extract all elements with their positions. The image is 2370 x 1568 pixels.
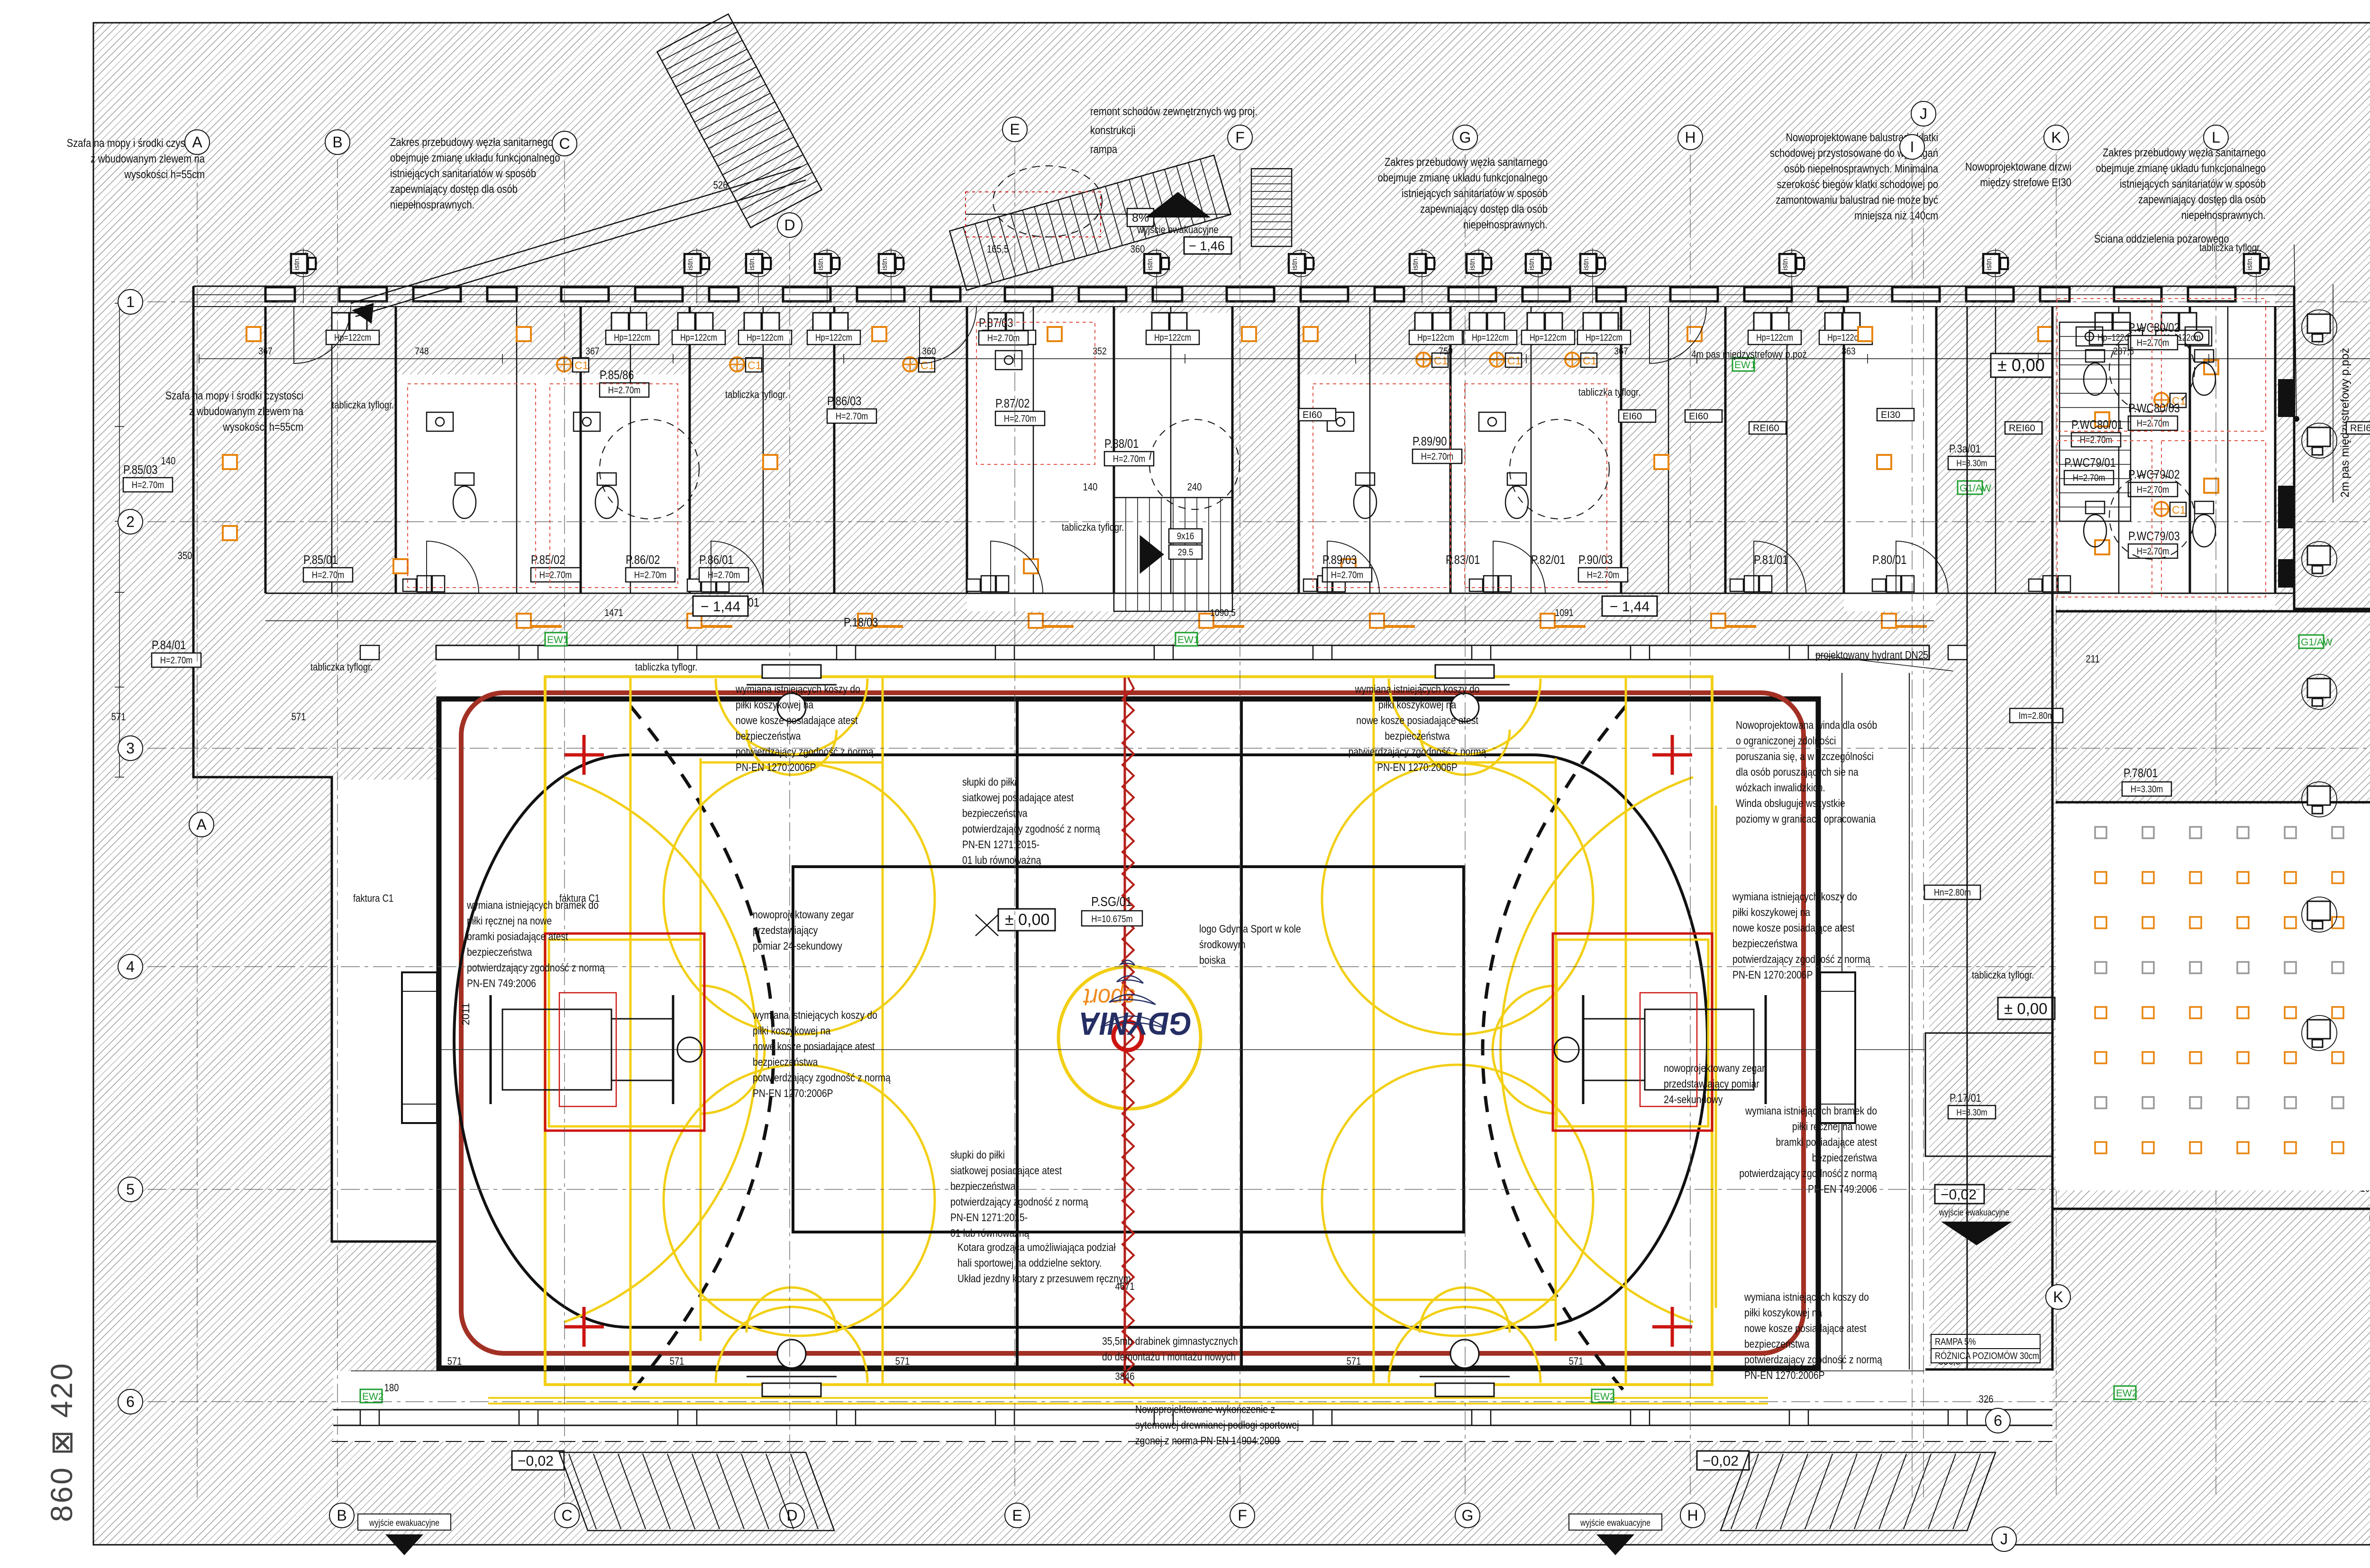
svg-text:H=2.70m: H=2.70m xyxy=(836,411,868,422)
svg-text:zgonej z norma PN-EN 14904:200: zgonej z norma PN-EN 14904:2009 xyxy=(1135,1435,1280,1447)
svg-text:367: 367 xyxy=(585,346,599,357)
svg-text:± 0,00: ± 0,00 xyxy=(1005,911,1049,929)
svg-text:szerokość biegów klatki schodo: szerokość biegów klatki schodowej po xyxy=(1777,178,1938,190)
svg-text:P.89/90: P.89/90 xyxy=(1413,435,1447,448)
svg-text:2011: 2011 xyxy=(460,1003,472,1025)
svg-text:−0,02: −0,02 xyxy=(518,1453,554,1469)
svg-text:rampa: rampa xyxy=(1090,143,1118,155)
svg-text:1091: 1091 xyxy=(1555,607,1573,619)
svg-text:P.90/03: P.90/03 xyxy=(1578,553,1613,567)
svg-text:571: 571 xyxy=(1347,1356,1361,1368)
svg-text:571: 571 xyxy=(1569,1356,1584,1368)
svg-text:H=3.30m: H=3.30m xyxy=(2131,784,2163,795)
svg-text:6: 6 xyxy=(126,1393,135,1410)
svg-text:29.5: 29.5 xyxy=(1178,547,1194,558)
svg-text:projektowany hydrant DN25: projektowany hydrant DN25 xyxy=(1815,650,1928,662)
svg-text:poziomy w granicach opracowani: poziomy w granicach opracowania xyxy=(1736,814,1876,825)
svg-text:H=2.70m: H=2.70m xyxy=(160,655,193,666)
svg-text:niepełnosprawnych.: niepełnosprawnych. xyxy=(390,198,474,211)
svg-text:potwierdzający zgodność z norm: potwierdzający zgodność z normą xyxy=(962,824,1100,835)
svg-text:571: 571 xyxy=(292,712,306,723)
svg-text:Nowoprojektowana winda dla osó: Nowoprojektowana winda dla osób xyxy=(1736,720,1877,732)
svg-text:siatkowej posiadające atest: siatkowej posiadające atest xyxy=(950,1165,1062,1177)
svg-text:patwierdzający zgodność z norm: patwierdzający zgodność z normą xyxy=(1349,746,1486,758)
svg-text:istn.: istn. xyxy=(1985,256,1993,270)
svg-text:P.3a/01: P.3a/01 xyxy=(1949,442,1981,455)
svg-text:H=2.70m: H=2.70m xyxy=(1587,570,1620,580)
svg-text:Hp=122cm: Hp=122cm xyxy=(680,332,717,343)
svg-text:2: 2 xyxy=(126,513,135,530)
svg-text:PN-EN 1270:2006P: PN-EN 1270:2006P xyxy=(1377,762,1458,774)
svg-text:8%: 8% xyxy=(1132,211,1149,225)
svg-text:obejmuje zmianę układu funkcjo: obejmuje zmianę układu funkcjonalnego xyxy=(1377,171,1548,184)
svg-text:360: 360 xyxy=(922,346,936,357)
svg-text:−0,02: −0,02 xyxy=(1703,1453,1739,1469)
svg-text:360: 360 xyxy=(1130,244,1145,255)
svg-text:środkowym: środkowym xyxy=(1199,939,1246,951)
svg-text:konstrukcji: konstrukcji xyxy=(1090,124,1135,136)
svg-text:piłki koszykowej na: piłki koszykowej na xyxy=(753,1025,830,1037)
svg-text:o ograniczonej zdolności: o ograniczonej zdolności xyxy=(1736,735,1836,747)
svg-text:180: 180 xyxy=(384,1383,399,1394)
svg-text:J: J xyxy=(2000,1531,2008,1548)
svg-text:bezpieczeństwa: bezpieczeństwa xyxy=(962,808,1028,820)
svg-text:H=2.70m: H=2.70m xyxy=(539,570,572,580)
svg-text:24-sekundowy: 24-sekundowy xyxy=(1664,1094,1723,1106)
svg-text:3846: 3846 xyxy=(1115,1371,1134,1383)
svg-text:C1: C1 xyxy=(574,359,588,372)
svg-text:EW2: EW2 xyxy=(362,1391,384,1402)
svg-text:wysokości h=55cm: wysokości h=55cm xyxy=(124,168,205,181)
svg-text:EW1: EW1 xyxy=(1734,360,1756,371)
svg-text:C: C xyxy=(561,1507,572,1524)
svg-text:bezpieczeństwa: bezpieczeństwa xyxy=(1812,1152,1878,1164)
svg-text:EW1: EW1 xyxy=(1177,634,1199,645)
svg-text:z wbudowanym zlewem na: z wbudowanym zlewem na xyxy=(189,405,303,417)
svg-text:Zakres przebudowy węzła sanita: Zakres przebudowy węzła sanitarnego xyxy=(1385,155,1548,168)
svg-text:tabliczka tyflogr.: tabliczka tyflogr. xyxy=(310,662,373,673)
svg-text:tabliczka tyflogr.: tabliczka tyflogr. xyxy=(1062,522,1124,534)
svg-text:potwierdzający zgodność z norm: potwierdzający zgodność z normą xyxy=(1732,954,1870,966)
svg-text:piłki ręcznej na nowe: piłki ręcznej na nowe xyxy=(467,915,552,927)
svg-text:1090,5: 1090,5 xyxy=(1210,607,1236,619)
svg-text:niepełnosprawnych.: niepełnosprawnych. xyxy=(2181,208,2266,221)
svg-text:istniejących sanitariatów w sp: istniejących sanitariatów w sposób xyxy=(1402,187,1548,199)
svg-text:piłki koszykowej na: piłki koszykowej na xyxy=(736,699,813,711)
svg-text:P.WC80/03: P.WC80/03 xyxy=(2128,401,2180,415)
svg-text:H=2.70m: H=2.70m xyxy=(2073,472,2106,483)
svg-text:H=2.70m: H=2.70m xyxy=(1004,413,1037,424)
svg-text:Hp=122cm: Hp=122cm xyxy=(1530,332,1567,343)
svg-text:4: 4 xyxy=(126,958,135,975)
svg-text:P.18/03: P.18/03 xyxy=(844,616,878,629)
svg-text:C1: C1 xyxy=(2172,504,2186,516)
svg-text:Zakres przebudowy węzła sanita: Zakres przebudowy węzła sanitarnego xyxy=(2103,146,2266,159)
svg-text:9x16: 9x16 xyxy=(1177,531,1194,542)
svg-text:Kotara grodząca umożliwiająca: Kotara grodząca umożliwiająca podział xyxy=(957,1242,1116,1254)
svg-text:P.88/01: P.88/01 xyxy=(1104,437,1139,451)
svg-text:faktura C1: faktura C1 xyxy=(559,893,600,905)
svg-text:wózkach inwalidzkich.: wózkach inwalidzkich. xyxy=(1735,782,1825,794)
svg-text:istn.: istn. xyxy=(686,256,694,270)
svg-text:Układ jezdny kotary z przesuwe: Układ jezdny kotary z przesuwem ręcznym xyxy=(957,1273,1131,1285)
svg-text:Hp=122cm: Hp=122cm xyxy=(815,332,852,343)
svg-text:H=2.70m: H=2.70m xyxy=(2137,418,2169,429)
svg-text:860 ⊠ 420: 860 ⊠ 420 xyxy=(45,1361,79,1522)
svg-text:nowe kosze posiadające atest: nowe kosze posiadające atest xyxy=(1744,1323,1867,1335)
svg-text:potwierdzający zgodność z norm: potwierdzający zgodność z normą xyxy=(753,1072,891,1084)
svg-text:326: 326 xyxy=(1979,1394,1994,1405)
svg-text:faktura C1: faktura C1 xyxy=(353,893,393,905)
svg-text:571: 571 xyxy=(447,1356,462,1368)
svg-text:K: K xyxy=(2051,129,2061,146)
svg-text:P.WC80/01: P.WC80/01 xyxy=(2071,418,2123,432)
svg-text:istn.: istn. xyxy=(817,256,825,270)
svg-text:RÓŻNICA POZIOMÓW 30cm: RÓŻNICA POZIOMÓW 30cm xyxy=(1935,1350,2039,1361)
svg-text:sytemowej drewnianej podłogi s: sytemowej drewnianej podłogi sportowej xyxy=(1135,1420,1299,1432)
svg-text:P.WC80/02: P.WC80/02 xyxy=(2128,321,2180,335)
svg-text:367: 367 xyxy=(258,346,272,357)
svg-text:P.86/02: P.86/02 xyxy=(626,553,660,567)
svg-text:bezpieczeństwa: bezpieczeństwa xyxy=(467,947,532,959)
svg-text:Nowoprojektowane drzwi: Nowoprojektowane drzwi xyxy=(1965,160,2071,173)
svg-text:211: 211 xyxy=(2086,654,2099,665)
svg-text:nowoprojektowany zegar: nowoprojektowany zegar xyxy=(1664,1063,1765,1075)
svg-text:Hn=2.80m: Hn=2.80m xyxy=(1934,887,1971,898)
svg-text:571: 571 xyxy=(670,1356,684,1368)
svg-text:H=3.30m: H=3.30m xyxy=(1956,1107,1987,1118)
svg-text:PN-EN 1271:2015-: PN-EN 1271:2015- xyxy=(962,839,1039,851)
svg-text:C: C xyxy=(559,135,570,152)
svg-text:750: 750 xyxy=(1439,346,1453,357)
svg-text:REI60: REI60 xyxy=(2009,423,2035,434)
svg-text:Im=2.80m: Im=2.80m xyxy=(2018,710,2054,721)
svg-text:EW2: EW2 xyxy=(2116,1388,2138,1399)
svg-text:istn.: istn. xyxy=(1412,256,1420,270)
svg-text:E: E xyxy=(1012,1507,1022,1524)
svg-text:dla osób poruszających sie na: dla osób poruszających sie na xyxy=(1736,767,1859,779)
svg-text:hali sportowej na oddzielne se: hali sportowej na oddzielne sektory. xyxy=(957,1258,1102,1269)
svg-text:H=2.70m: H=2.70m xyxy=(2137,484,2169,495)
svg-text:D: D xyxy=(784,217,795,234)
svg-text:remont schodów zewnętrznych wg: remont schodów zewnętrznych wg proj. xyxy=(1090,105,1258,118)
svg-text:zapewniający dostęp dla osób: zapewniający dostęp dla osób xyxy=(1420,202,1548,215)
svg-text:H=2.70m: H=2.70m xyxy=(1421,451,1454,462)
svg-text:P.84/01: P.84/01 xyxy=(152,638,186,652)
svg-text:bezpieczeństwa: bezpieczeństwa xyxy=(1744,1339,1810,1350)
svg-text:słupki do piłki: słupki do piłki xyxy=(950,1150,1005,1161)
svg-text:piłki koszykowej na: piłki koszykowej na xyxy=(1744,1307,1822,1319)
svg-text:wymiana istniejących koszy do: wymiana istniejących koszy do xyxy=(1355,684,1480,696)
svg-text:748: 748 xyxy=(415,346,428,357)
svg-text:obejmuje zmianę układu funkcjo: obejmuje zmianę układu funkcjonalnego xyxy=(390,151,560,164)
svg-text:siatkowej posiadające atest: siatkowej posiadające atest xyxy=(962,792,1074,804)
svg-text:przedstawiający pomiar: przedstawiający pomiar xyxy=(1664,1079,1759,1090)
svg-text:P.SG/01: P.SG/01 xyxy=(1091,895,1132,909)
svg-text:wymiana istniejących koszy do: wymiana istniejących koszy do xyxy=(1744,1292,1869,1304)
svg-text:H=2.70m: H=2.70m xyxy=(1331,570,1364,580)
svg-text:bramki posiadające atest: bramki posiadające atest xyxy=(1776,1137,1877,1149)
svg-text:EW1: EW1 xyxy=(547,634,569,645)
svg-text:EI60: EI60 xyxy=(1303,410,1322,420)
svg-text:A: A xyxy=(196,816,207,833)
svg-text:EI60: EI60 xyxy=(1623,411,1642,422)
svg-text:P.17/01: P.17/01 xyxy=(1950,1091,1981,1104)
svg-text:± 0,00: ± 0,00 xyxy=(1997,355,2045,375)
svg-text:EI60: EI60 xyxy=(1689,411,1708,422)
svg-text:potwierdzający zgodność z norm: potwierdzający zgodność z normą xyxy=(467,962,605,974)
svg-text:J: J xyxy=(1920,105,1927,122)
svg-text:istn.: istn. xyxy=(1781,256,1789,270)
svg-text:G1/AW: G1/AW xyxy=(1960,483,1991,494)
svg-text:bezpieczeństwa: bezpieczeństwa xyxy=(736,731,801,743)
svg-text:wyjście ewakuacyjne: wyjście ewakuacyjne xyxy=(1580,1518,1650,1528)
svg-text:osób niepełnosprawnych. Minima: osób niepełnosprawnych. Minimalna xyxy=(1784,162,1938,175)
svg-text:istn.: istn. xyxy=(1528,256,1536,270)
svg-text:EI30: EI30 xyxy=(1881,410,1900,420)
svg-text:01 lub równoważną: 01 lub równoważną xyxy=(962,855,1041,867)
svg-text:P.85/03: P.85/03 xyxy=(123,463,157,477)
svg-text:35,5mb drabinek gimnastycznych: 35,5mb drabinek gimnastycznych xyxy=(1102,1336,1238,1348)
svg-text:P.81/01: P.81/01 xyxy=(1754,553,1788,567)
svg-text:571: 571 xyxy=(895,1356,910,1368)
svg-text:logo Gdynia Sport w kole: logo Gdynia Sport w kole xyxy=(1199,924,1301,935)
svg-text:piłki koszykowej na: piłki koszykowej na xyxy=(1732,907,1810,919)
svg-text:1: 1 xyxy=(126,293,135,310)
svg-text:Hp=122cm: Hp=122cm xyxy=(1472,332,1509,343)
svg-text:K: K xyxy=(2053,1288,2063,1305)
svg-text:H=2.70m: H=2.70m xyxy=(2137,546,2169,557)
svg-text:wysokości h=55cm: wysokości h=55cm xyxy=(222,420,303,433)
svg-text:140: 140 xyxy=(1083,482,1098,493)
svg-text:526: 526 xyxy=(713,180,728,191)
svg-text:tabliczka tyflogr.: tabliczka tyflogr. xyxy=(1578,387,1641,399)
svg-text:słupki do piłki: słupki do piłki xyxy=(962,777,1017,789)
svg-text:nowoprojektowany zegar: nowoprojektowany zegar xyxy=(753,909,854,921)
svg-text:Hp=122cm: Hp=122cm xyxy=(747,332,784,343)
svg-text:REI60: REI60 xyxy=(1753,423,1779,434)
svg-text:mniejsza niż 140cm: mniejsza niż 140cm xyxy=(1854,209,1938,222)
svg-text:H=3.30m: H=3.30m xyxy=(1956,458,1987,469)
svg-text:A: A xyxy=(192,134,202,151)
svg-text:wyjście ewakuacyjne: wyjście ewakuacyjne xyxy=(1939,1207,2009,1218)
svg-text:P.82/01: P.82/01 xyxy=(1531,553,1565,567)
svg-text:nowe kosze posiadające atest: nowe kosze posiadające atest xyxy=(753,1041,875,1053)
svg-text:pomiar 24-sekundowy: pomiar 24-sekundowy xyxy=(753,941,842,952)
svg-text:P.WC79/01: P.WC79/01 xyxy=(2064,456,2116,470)
svg-text:H=2.70m: H=2.70m xyxy=(132,480,164,490)
svg-text:H: H xyxy=(1685,129,1695,146)
svg-text:istn.: istn. xyxy=(1146,256,1154,270)
svg-text:I: I xyxy=(1910,138,1914,155)
svg-text:H: H xyxy=(1687,1507,1698,1524)
svg-text:piłki koszykowej na: piłki koszykowej na xyxy=(1378,699,1456,711)
svg-text:tabliczka tyflogr.: tabliczka tyflogr. xyxy=(2199,243,2261,254)
svg-text:E: E xyxy=(1010,121,1020,138)
svg-text:zamontowaniu balustrad nie moż: zamontowaniu balustrad nie może być xyxy=(1776,193,1938,206)
svg-text:wyjście ewakuacyjne: wyjście ewakuacyjne xyxy=(369,1518,439,1528)
svg-text:F: F xyxy=(1238,1507,1247,1524)
svg-text:tabliczka tyflogr.: tabliczka tyflogr. xyxy=(725,390,787,401)
svg-text:Hp=122cm: Hp=122cm xyxy=(1417,332,1454,343)
svg-text:Hp=122cm: Hp=122cm xyxy=(1154,332,1191,343)
svg-text:P.86/03: P.86/03 xyxy=(827,394,861,408)
svg-text:istn.: istn. xyxy=(1291,256,1299,270)
svg-text:367: 367 xyxy=(1614,346,1628,357)
svg-text:wyjście ewakuacyjne: wyjście ewakuacyjne xyxy=(1137,225,1218,236)
svg-text:EW2: EW2 xyxy=(1594,1391,1615,1402)
svg-text:P.86/01: P.86/01 xyxy=(699,553,733,567)
svg-text:1471: 1471 xyxy=(604,607,623,619)
svg-text:tabliczka tyflogr.: tabliczka tyflogr. xyxy=(1972,970,2034,981)
svg-text:zapewniający dostęp dla osób: zapewniający dostęp dla osób xyxy=(2138,193,2266,206)
svg-text:3: 3 xyxy=(126,740,135,757)
svg-text:− 1,44: − 1,44 xyxy=(701,599,740,615)
svg-text:F: F xyxy=(1235,129,1245,146)
svg-text:H=2.70m: H=2.70m xyxy=(708,570,740,580)
svg-text:Hp=122cm: Hp=122cm xyxy=(614,332,651,343)
svg-text:tabliczka tyflogr.: tabliczka tyflogr. xyxy=(635,662,697,673)
svg-text:istn.: istn. xyxy=(1468,256,1477,270)
svg-text:H=2.70m: H=2.70m xyxy=(2137,337,2169,348)
svg-text:PN-EN 1270:2006P: PN-EN 1270:2006P xyxy=(1732,970,1813,981)
svg-text:P.87/02: P.87/02 xyxy=(995,397,1030,410)
svg-text:potwierdzający zgodność z norm: potwierdzający zgodność z normą xyxy=(1739,1168,1877,1180)
svg-text:boiska: boiska xyxy=(1199,955,1226,967)
svg-text:Winda obsługuje wszystkie: Winda obsługuje wszystkie xyxy=(1736,798,1845,810)
svg-text:istn.: istn. xyxy=(881,256,889,270)
svg-text:H=10.675m: H=10.675m xyxy=(1091,914,1132,924)
svg-text:PN-EN 1270:2006P: PN-EN 1270:2006P xyxy=(753,1088,833,1100)
svg-text:między strefowe EI30: między strefowe EI30 xyxy=(1980,176,2071,189)
svg-text:istn.: istn. xyxy=(1582,256,1590,270)
svg-text:G: G xyxy=(1462,1507,1474,1524)
svg-text:Hp=122cm: Hp=122cm xyxy=(1586,332,1623,343)
svg-text:± 0,00: ± 0,00 xyxy=(2004,1000,2048,1017)
svg-text:piłki ręcznej na nowe: piłki ręcznej na nowe xyxy=(1792,1121,1877,1133)
svg-text:bramki posiadające atest: bramki posiadające atest xyxy=(467,931,568,943)
svg-text:bezpieczeństwa: bezpieczeństwa xyxy=(950,1181,1016,1193)
svg-text:363: 363 xyxy=(1841,346,1855,357)
svg-text:PN-EN 1270:2006P: PN-EN 1270:2006P xyxy=(736,762,816,774)
svg-text:przedstawiający: przedstawiający xyxy=(753,925,818,937)
svg-text:240: 240 xyxy=(1187,482,1202,493)
svg-text:nowe kosze posiadające atest: nowe kosze posiadające atest xyxy=(736,715,858,727)
svg-text:B: B xyxy=(337,1507,346,1524)
svg-text:5: 5 xyxy=(126,1181,135,1198)
svg-text:C1: C1 xyxy=(1583,354,1596,367)
svg-text:G1/AW: G1/AW xyxy=(2301,637,2333,648)
svg-text:01 lub równoważną: 01 lub równoważną xyxy=(950,1228,1029,1240)
svg-text:Zakres przebudowy węzła sanita: Zakres przebudowy węzła sanitarnego xyxy=(390,136,553,148)
svg-text:P.85/01: P.85/01 xyxy=(303,553,337,567)
svg-text:PN-EN 1270:2006P: PN-EN 1270:2006P xyxy=(1744,1370,1825,1382)
svg-text:P.WC79/03: P.WC79/03 xyxy=(2128,529,2180,543)
svg-text:nowe kosze posiadające atest: nowe kosze posiadające atest xyxy=(1356,715,1478,727)
svg-text:Hp=122cm: Hp=122cm xyxy=(1756,332,1793,343)
svg-text:wymiana istniejących bramek do: wymiana istniejących bramek do xyxy=(1745,1106,1877,1117)
svg-text:165,5: 165,5 xyxy=(987,244,1009,255)
svg-text:C1: C1 xyxy=(921,359,934,372)
svg-text:G: G xyxy=(1459,129,1471,146)
svg-text:4671: 4671 xyxy=(1115,1281,1134,1293)
svg-text:C1: C1 xyxy=(1507,354,1521,367)
svg-text:P.78/01: P.78/01 xyxy=(2124,766,2158,780)
svg-text:niepełnosprawnych.: niepełnosprawnych. xyxy=(1463,218,1548,231)
svg-text:istn.: istn. xyxy=(748,256,756,270)
svg-text:tabliczka tyflogr.: tabliczka tyflogr. xyxy=(332,400,394,411)
svg-text:potwierdzający zgodność z norm: potwierdzający zgodność z normą xyxy=(950,1196,1088,1208)
svg-text:potwierdzający zgodność z norm: potwierdzający zgodność z normą xyxy=(736,746,874,758)
svg-text:wymiana istniejących koszy do: wymiana istniejących koszy do xyxy=(752,1010,877,1022)
svg-text:potwierdzający zgodność z norm: potwierdzający zgodność z normą xyxy=(1744,1354,1882,1366)
svg-text:− 1,44: − 1,44 xyxy=(1610,599,1650,615)
svg-text:H=2.70m: H=2.70m xyxy=(312,570,345,580)
svg-text:istniejących sanitariatów w sp: istniejących sanitariatów w sposób xyxy=(390,167,536,180)
svg-text:Nowoprojektowane wykończenie: Nowoprojektowane wykończenie z xyxy=(1135,1404,1275,1416)
svg-text:− 1,46: − 1,46 xyxy=(1189,239,1225,253)
svg-text:P.WC79/02: P.WC79/02 xyxy=(2128,468,2180,481)
svg-text:obejmuje zmianę układu funkcjo: obejmuje zmianę układu funkcjonalnego xyxy=(2096,162,2266,174)
svg-text:C1: C1 xyxy=(747,359,761,372)
svg-text:bezpieczeństwa: bezpieczeństwa xyxy=(1732,938,1798,950)
svg-text:H=2.70m: H=2.70m xyxy=(634,570,667,580)
svg-text:RAMPA 5%: RAMPA 5% xyxy=(1935,1336,1976,1347)
svg-text:bezpieczeństwa: bezpieczeństwa xyxy=(753,1057,818,1069)
svg-text:6: 6 xyxy=(1994,1412,2002,1429)
svg-text:wymiana istniejących koszy do: wymiana istniejących koszy do xyxy=(735,684,860,696)
svg-text:H=2.70m: H=2.70m xyxy=(608,385,641,396)
svg-text:Szafa na mopy i środki czystoś: Szafa na mopy i środki czystości xyxy=(67,136,205,149)
svg-text:350: 350 xyxy=(178,551,192,562)
svg-text:sport: sport xyxy=(1083,983,1135,1012)
svg-text:Szafa na mopy i środki czystoś: Szafa na mopy i środki czystości xyxy=(165,389,303,402)
svg-text:B: B xyxy=(332,134,342,151)
svg-text:istn.: istn. xyxy=(2246,256,2254,270)
svg-text:istniejących sanitariatów w sp: istniejących sanitariatów w sposób xyxy=(2120,177,2266,190)
svg-text:z wbudowanym zlewem na: z wbudowanym zlewem na xyxy=(91,152,205,165)
svg-text:287,5: 287,5 xyxy=(2113,346,2134,357)
svg-text:poruszania się, a w szczególno: poruszania się, a w szczególności xyxy=(1736,751,1874,763)
svg-text:zapewniający dostęp dla osób: zapewniający dostęp dla osób xyxy=(390,182,518,195)
svg-text:bezpieczeństwa: bezpieczeństwa xyxy=(1385,731,1450,743)
svg-text:nowe kosze posiadające atest: nowe kosze posiadające atest xyxy=(1732,923,1855,934)
svg-text:PN-EN 1271:2015-: PN-EN 1271:2015- xyxy=(950,1212,1028,1224)
svg-text:571: 571 xyxy=(111,712,126,723)
svg-text:P.85/86: P.85/86 xyxy=(600,368,634,382)
svg-text:Hp=122cm: Hp=122cm xyxy=(334,332,371,343)
svg-text:P.87/03: P.87/03 xyxy=(979,316,1013,330)
svg-text:do demontażu i montażu nowych: do demontażu i montażu nowych xyxy=(1102,1351,1236,1363)
svg-text:istn.: istn. xyxy=(293,256,301,270)
svg-text:PN-EN 749:2006: PN-EN 749:2006 xyxy=(467,978,536,990)
svg-text:P.80/01: P.80/01 xyxy=(1872,553,1906,567)
svg-text:L: L xyxy=(2212,129,2220,146)
svg-text:REI60: REI60 xyxy=(2350,423,2370,434)
svg-text:H=2.70m: H=2.70m xyxy=(1113,453,1146,464)
svg-text:140: 140 xyxy=(161,456,176,467)
svg-text:wymiana istniejących koszy do: wymiana istniejących koszy do xyxy=(1732,891,1857,903)
